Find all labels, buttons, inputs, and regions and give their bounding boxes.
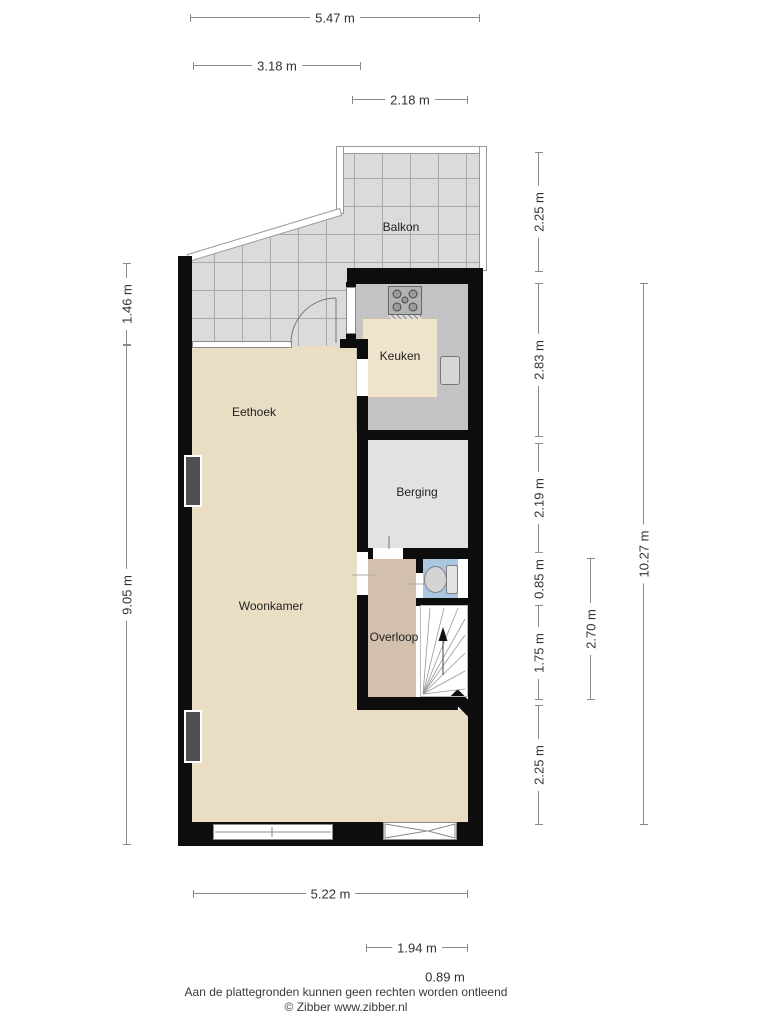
dimension-bottom-1: 5.22 m <box>193 893 468 894</box>
room-label-berging: Berging <box>396 485 437 499</box>
balcony-railing-right <box>479 146 487 271</box>
dimension-bottom-2: 1.94 m <box>366 947 468 948</box>
kitchen-balcony-window <box>346 287 356 334</box>
balcony-window-wall <box>192 341 292 348</box>
wall <box>340 339 368 348</box>
kitchen-door-opening <box>357 359 368 396</box>
room-label-eethoek: Eethoek <box>232 405 276 419</box>
stove-icon <box>388 286 422 315</box>
dimension-right-8: 10.27 m <box>643 283 644 825</box>
dimension-left-2: 9.05 m <box>126 345 127 845</box>
dimension-top-3: 2.18 m <box>352 99 468 100</box>
room-label-overloop: Overloop <box>370 630 419 644</box>
hallway-floor <box>368 558 416 697</box>
wall <box>357 697 458 710</box>
room-label-woonkamer: Woonkamer <box>239 599 303 613</box>
wall <box>357 440 368 550</box>
wall <box>468 268 483 844</box>
dimension-bottom-3: 0.89 m <box>422 976 468 977</box>
living-floor-extension <box>358 710 468 824</box>
wall <box>416 598 470 606</box>
wall <box>357 430 483 440</box>
footer-credit: © Zibber www.zibber.nl <box>0 1000 692 1015</box>
wall <box>347 268 483 284</box>
dimension-top-1: 5.47 m <box>190 17 480 18</box>
sink-icon <box>440 356 460 385</box>
toilet-tank-icon <box>446 565 458 594</box>
footer-disclaimer: Aan de plattegronden kunnen geen rechten… <box>0 985 692 1000</box>
left-window <box>184 710 202 763</box>
dimension-left-1: 1.46 m <box>126 263 127 345</box>
room-label-keuken: Keuken <box>380 349 421 363</box>
storage-door-opening <box>373 548 403 559</box>
dimension-right-5: 1.75 m <box>538 605 539 700</box>
room-label-balkon: Balkon <box>383 220 420 234</box>
dimension-right-3: 2.19 m <box>538 443 539 553</box>
footer: Aan de plattegronden kunnen geen rechten… <box>0 985 692 1015</box>
stairs-floor <box>420 605 468 697</box>
dimension-right-4: 0.85 m <box>538 558 539 600</box>
bottom-window <box>213 824 333 840</box>
left-window <box>184 455 202 507</box>
dimension-right-1: 2.25 m <box>538 152 539 272</box>
counter-hatch <box>389 315 421 319</box>
toilet-icon <box>424 566 447 593</box>
dimension-right-6: 2.25 m <box>538 705 539 825</box>
hallway-door-opening <box>357 552 368 595</box>
toilet-door-opening <box>416 573 423 598</box>
dimension-right-7: 2.70 m <box>590 558 591 700</box>
dimension-top-2: 3.18 m <box>193 65 361 66</box>
floorplan-page: Balkon Keuken Eethoek Berging Woonkamer … <box>0 0 768 1024</box>
balcony-railing-top <box>336 146 487 154</box>
dimension-right-2: 2.83 m <box>538 283 539 437</box>
bottom-french-door <box>383 822 457 840</box>
balcony-railing-left <box>336 146 344 214</box>
